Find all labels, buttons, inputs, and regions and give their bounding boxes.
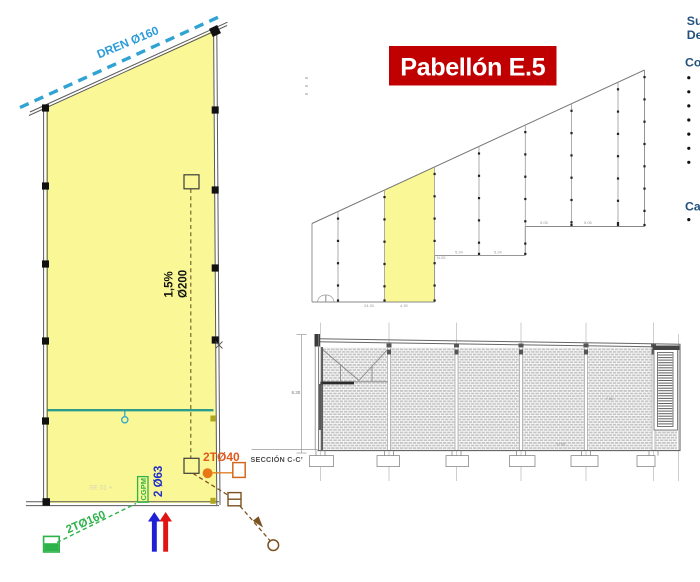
svg-text:8.30: 8.30 (292, 390, 301, 395)
svg-text:N.05: N.05 (437, 255, 446, 260)
svg-text:Ø200: Ø200 (178, 270, 190, 298)
svg-text:1,5%: 1,5% (164, 271, 176, 297)
svg-text:5.24: 5.24 (494, 250, 503, 255)
svg-text:17.05: 17.05 (556, 443, 565, 447)
svg-text:5.24: 5.24 (455, 250, 464, 255)
svg-text:24.30: 24.30 (364, 303, 375, 308)
svg-text:CGPM: CGPM (139, 478, 148, 501)
svg-text:Con: Con (685, 56, 700, 70)
svg-text:Des: Des (687, 28, 700, 42)
svg-text:5.05: 5.05 (584, 220, 593, 225)
svg-text:7.05: 7.05 (606, 397, 613, 401)
svg-text:SECCIÓN C-C’: SECCIÓN C-C’ (251, 455, 304, 464)
svg-text:SE 01 +: SE 01 + (89, 485, 113, 492)
svg-text:4.30: 4.30 (400, 303, 409, 308)
svg-text:2 Ø63: 2 Ø63 (153, 466, 165, 497)
svg-text:Sup: Sup (687, 14, 700, 28)
svg-text:5.05: 5.05 (540, 220, 549, 225)
svg-text:Pabellón E.5: Pabellón E.5 (400, 54, 545, 82)
svg-text:2TØ40: 2TØ40 (203, 450, 240, 464)
svg-text:Can: Can (685, 199, 700, 213)
